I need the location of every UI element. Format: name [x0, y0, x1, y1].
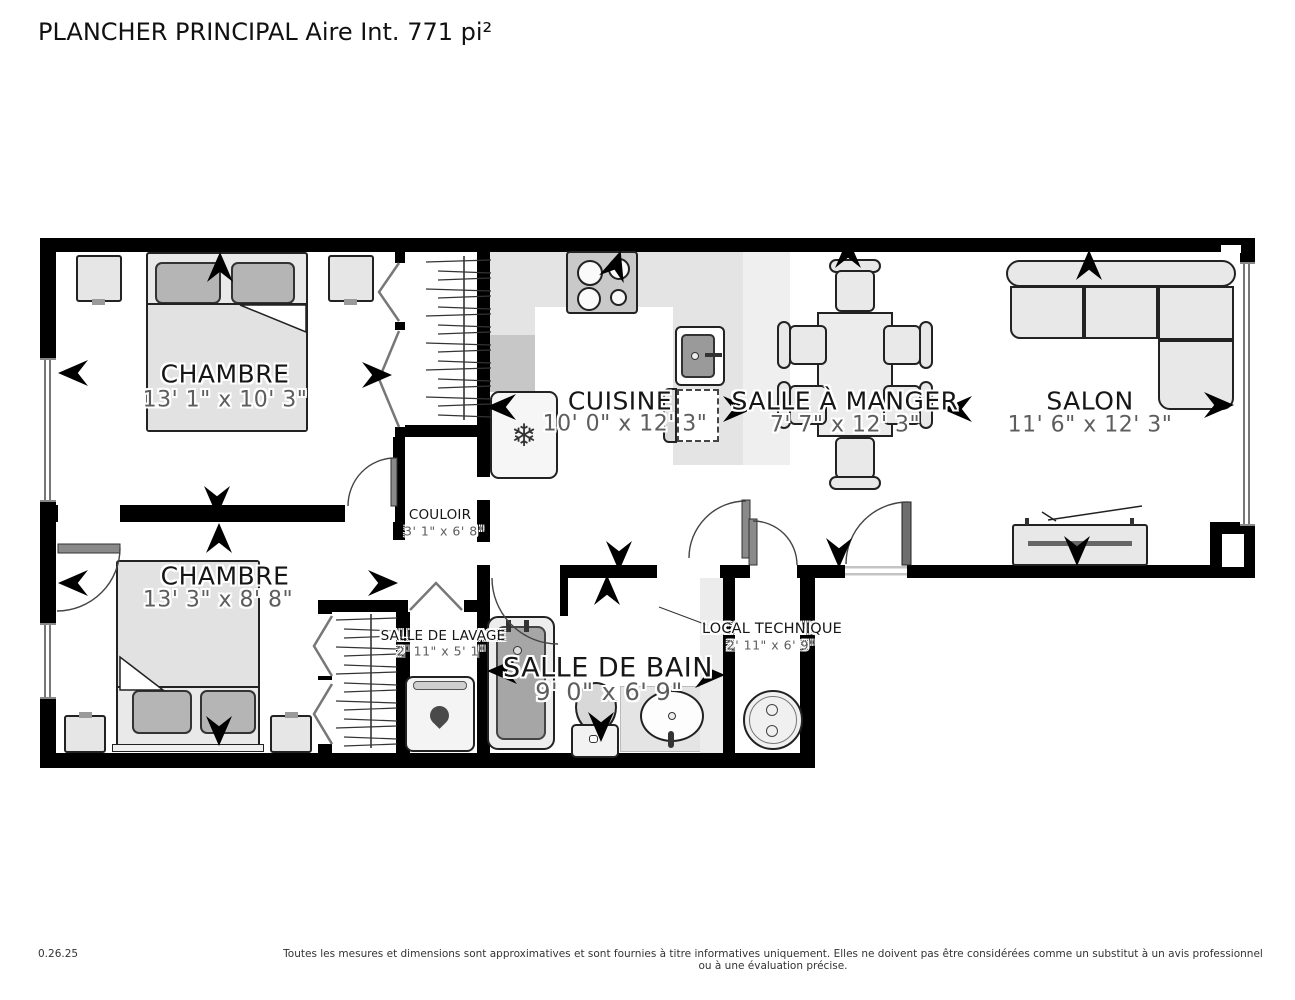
pillow: [132, 690, 192, 734]
wall-segment: [800, 565, 815, 768]
room-label-chambre1: CHAMBRE: [161, 360, 290, 389]
room-dims-salle-de-bain: 9' 0" x 6' 9": [535, 678, 683, 706]
room-dims-salle-a-manger: 7' 7" x 12' 3": [770, 413, 920, 438]
footer-disclaimer: Toutes les mesures et dimensions sont ap…: [283, 948, 1263, 972]
closet-opening: [318, 614, 332, 676]
closet-opening: [318, 680, 332, 744]
sofa-seat: [1010, 286, 1084, 339]
room-dims-salon: 11' 6" x 12' 3": [1008, 413, 1173, 438]
heater-valve: [766, 725, 778, 737]
wall-segment: [318, 600, 490, 612]
closet-opening: [395, 263, 405, 322]
door-opening: [58, 505, 120, 522]
toilet-button: [589, 735, 598, 743]
room-dims-chambre2: 13' 3" x 8' 8": [143, 588, 293, 613]
wall-segment: [395, 425, 490, 437]
door-swing-arc: [753, 521, 797, 565]
sofa-seat: [1084, 286, 1158, 339]
console-cable: [1042, 512, 1056, 521]
floorplan-page: PLANCHER PRINCIPAL Aire Int. 771 pi²: [0, 0, 1295, 1000]
tub-faucet: [506, 620, 511, 632]
window: [40, 623, 56, 699]
page-title: PLANCHER PRINCIPAL Aire Int. 771 pi²: [38, 18, 492, 46]
closet-opening: [395, 330, 405, 427]
room-dims-couloir: 3' 1" x 6' 8": [404, 524, 484, 539]
wall-vent: [1221, 245, 1241, 253]
room-label-salon: SALON: [1046, 387, 1133, 416]
threshold: [845, 573, 907, 576]
nightstand-handle: [92, 299, 105, 305]
door-swing-arc: [846, 502, 908, 564]
dim-arrow-up: [594, 575, 620, 605]
wall-segment: [40, 753, 815, 768]
sink-faucet: [668, 731, 674, 748]
plan-linework: [0, 0, 1295, 1000]
room-label-couloir: COULOIR: [409, 507, 471, 523]
console-cable: [1048, 506, 1142, 520]
dining-chair-back: [919, 321, 933, 369]
dim-arrow-left: [58, 570, 88, 596]
sink-faucet: [705, 353, 722, 357]
door-opening: [345, 505, 395, 522]
door-leaf: [742, 500, 750, 558]
door-opening: [408, 600, 464, 612]
sofa-chaise: [1158, 340, 1234, 410]
dining-chair: [835, 437, 875, 479]
wall-niche: [1222, 534, 1244, 567]
window: [1240, 262, 1255, 526]
dining-chair-back: [829, 476, 881, 490]
room-label-salle-a-manger: SALLE À MANGER: [732, 387, 959, 416]
footer-version: 0.26.25: [38, 948, 78, 960]
room-label-salle-de-lavage: SALLE DE LAVAGE: [381, 628, 506, 644]
snowflake-icon: ❄: [506, 418, 542, 454]
room-dims-salle-de-lavage: 2' 11" x 5' 1": [397, 644, 485, 659]
room-dims-cuisine: 10' 0" x 12' 3": [543, 412, 708, 437]
dining-chair: [883, 325, 921, 365]
door-swing-arc: [689, 501, 746, 558]
stove: [566, 251, 638, 314]
stove-burner: [610, 289, 627, 306]
room-dims-chambre1: 13' 1" x 10' 3": [143, 388, 308, 413]
pillow: [231, 262, 295, 304]
sink-drain: [668, 712, 676, 720]
sofa-corner: [1158, 286, 1234, 340]
nightstand: [328, 255, 374, 302]
kitchen-counter-left-dark: [490, 335, 535, 392]
kitchen-counter-left: [490, 307, 535, 335]
sofa-back: [1006, 260, 1236, 287]
door-leaf: [58, 544, 120, 553]
room-label-chambre2: CHAMBRE: [161, 562, 290, 591]
wall-segment: [907, 565, 1212, 578]
bed-footboard: [112, 744, 264, 752]
dim-arrow-down: [826, 538, 852, 568]
tub-faucet: [524, 620, 529, 632]
dim-arrow-left: [58, 360, 88, 386]
console-foot: [1025, 518, 1029, 525]
door-leaf: [749, 519, 757, 565]
nightstand: [76, 255, 122, 302]
door-swing-arc: [348, 458, 395, 506]
nightstand: [270, 715, 312, 753]
heater-valve: [766, 704, 778, 716]
console-foot: [1130, 518, 1134, 525]
pillow: [155, 262, 221, 304]
wall-segment: [560, 578, 568, 616]
sink-drain: [691, 352, 699, 360]
wall-segment: [477, 252, 490, 477]
door-leaf: [902, 502, 911, 565]
room-dims-local-technique: 2' 11" x 6' 9": [727, 638, 815, 653]
stove-burner: [577, 260, 603, 286]
dim-arrow-right: [368, 570, 398, 596]
wall-segment: [40, 238, 1255, 252]
nightstand-handle: [344, 299, 357, 305]
nightstand-handle: [285, 712, 298, 718]
window: [40, 358, 56, 502]
dim-arrow-up: [206, 523, 232, 553]
pillow: [200, 690, 256, 734]
dining-chair: [835, 270, 875, 312]
dining-chair: [789, 325, 827, 365]
wall-segment: [723, 565, 735, 755]
nightstand: [64, 715, 106, 753]
room-label-local-technique: LOCAL TECHNIQUE: [702, 621, 842, 637]
door-opening: [490, 565, 560, 578]
nightstand-handle: [79, 712, 92, 718]
dim-arrow-right: [362, 362, 392, 388]
washer-panel: [413, 681, 467, 690]
stove-burner: [577, 287, 601, 311]
threshold: [845, 566, 907, 569]
